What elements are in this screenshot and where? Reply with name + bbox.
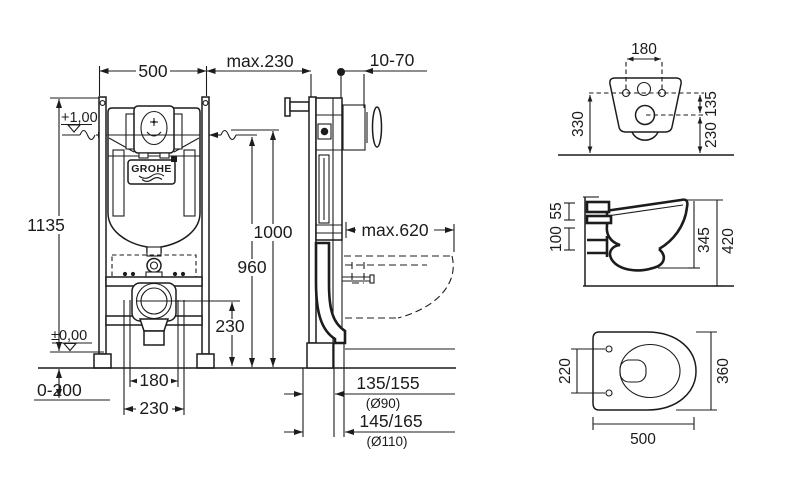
dim-frame-height: 1135	[27, 215, 65, 235]
dim-profile-55: 55	[548, 202, 565, 219]
dim-bowl-length-max: max.620	[361, 220, 428, 240]
dim-pipe-spacing-outer: 230	[139, 398, 168, 418]
dim-floor-adjust: 0-200	[37, 380, 82, 400]
level-mark-floor: ±0,00	[51, 328, 87, 344]
dim-back-135: 135	[703, 91, 720, 117]
dim-back-230: 230	[703, 122, 720, 148]
dim-drain-110-dia: (Ø110)	[366, 434, 407, 449]
dim-plan-360: 360	[715, 358, 732, 384]
dim-1000: 1000	[254, 222, 293, 242]
technical-drawing-page: GROHE	[0, 0, 800, 493]
dim-frame-width: 500	[138, 61, 167, 81]
grohe-logo-text: GROHE	[131, 163, 172, 175]
dim-back-hole-spacing: 180	[631, 41, 657, 58]
frame-side-view: max.230 10-70 max.620 135/155 (Ø90) 145/…	[207, 50, 456, 449]
flush-plate-side	[373, 107, 382, 147]
flush-sleeve-hatched	[343, 105, 365, 150]
dim-outlet-height: 230	[215, 316, 244, 336]
bowl-outline-dashed	[344, 256, 453, 318]
bowl-plan-view: 220 360 500	[557, 332, 732, 448]
dim-profile-100: 100	[548, 226, 565, 252]
grohe-installation-drawing: GROHE	[0, 0, 800, 493]
dim-drain-110: 145/165	[359, 411, 422, 431]
dim-pipe-spacing-inner: 180	[139, 370, 168, 390]
flush-plate-front	[126, 106, 182, 158]
dim-back-height: 330	[570, 111, 587, 137]
dim-drain-90: 135/155	[356, 373, 419, 393]
dim-frame-depth: max.230	[226, 51, 293, 71]
dim-plan-220: 220	[557, 358, 574, 384]
level-mark-top: +1,00	[61, 110, 98, 126]
dim-profile-345: 345	[696, 227, 713, 253]
bowl-profile-view: 55 100 345 420	[548, 197, 737, 286]
dim-drain-90-dia: (Ø90)	[366, 396, 401, 411]
dim-plate-distance: 10-70	[370, 50, 415, 70]
bowl-back-view: 180 330 135 230	[558, 41, 734, 155]
wall-reference-dot	[337, 68, 345, 76]
dim-960: 960	[237, 257, 266, 277]
dim-plan-500: 500	[630, 431, 656, 448]
logo-trademark-square	[171, 156, 177, 162]
outlet-connector-front	[132, 283, 176, 345]
outlet-elbow-side	[316, 243, 345, 343]
grohe-logo: GROHE	[128, 156, 177, 184]
dim-profile-420: 420	[720, 228, 737, 254]
